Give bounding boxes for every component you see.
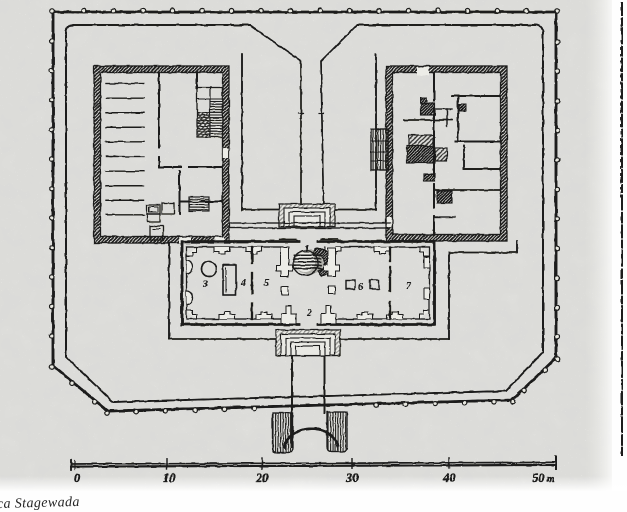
svg-text:30: 30 [345, 471, 359, 485]
svg-text:40: 40 [442, 471, 456, 485]
svg-text:4: 4 [240, 278, 246, 289]
svg-text:1: 1 [305, 245, 310, 256]
svg-text:50m: 50m [532, 471, 555, 485]
svg-text:20: 20 [255, 471, 269, 485]
svg-text:10: 10 [163, 471, 176, 485]
svg-text:ca Stagewada: ca Stagewada [0, 495, 80, 512]
svg-text:5: 5 [264, 278, 269, 289]
svg-text:3: 3 [202, 279, 208, 290]
svg-text:0: 0 [74, 471, 81, 485]
svg-text:2: 2 [306, 308, 312, 319]
svg-text:6: 6 [358, 282, 363, 293]
